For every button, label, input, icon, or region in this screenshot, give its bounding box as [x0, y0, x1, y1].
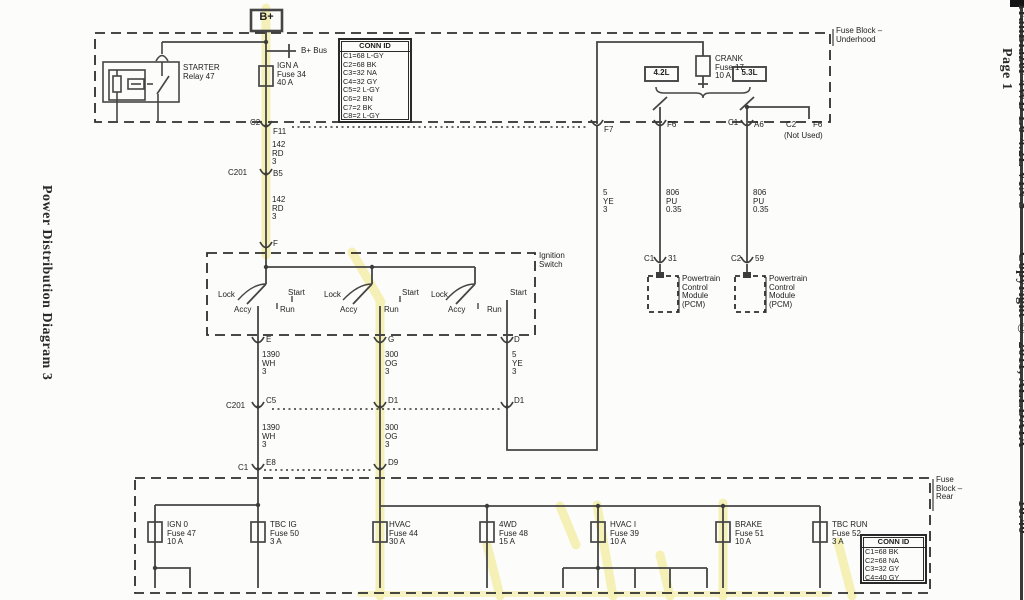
- relay-lever: [157, 76, 169, 94]
- pin-c5: [256, 405, 259, 408]
- junction-a6: [745, 105, 749, 109]
- junction-4wd: [485, 504, 489, 508]
- page-title-vertical: Power Distribution Diagram 3: [38, 185, 54, 380]
- ignition-g1-accy: Accy: [234, 306, 251, 315]
- pcm-right-pin-block: [743, 272, 751, 278]
- wire-label-806-a: 806 PU 0.35: [666, 189, 682, 215]
- version-number: 10.40: [1015, 500, 1024, 534]
- fuse-label-hvac44: HVAC Fuse 44 30 A: [389, 521, 418, 547]
- ignition-g3-start: Start: [510, 289, 527, 298]
- connector-row-dotlines: [264, 127, 588, 470]
- engine-42l-label: 4.2L: [645, 69, 678, 78]
- connector-c201b-label: C201: [226, 402, 245, 411]
- margin-info-vertical: TrailBlazer 4WD L6-4.2L VIN S Copyright …: [998, 2, 1024, 598]
- connector-c2b-label: C2: [786, 121, 796, 130]
- pin-d1a: [378, 405, 381, 408]
- fuse-crank: [696, 56, 710, 76]
- ignition-g3-accy: Accy: [448, 306, 465, 315]
- connector-c1-label: C1: [728, 119, 738, 128]
- wire-label-5ye-d: 5 YE 3: [512, 351, 523, 377]
- connector-f6b-label: F6: [813, 121, 822, 130]
- highlight-hvaci-top: [560, 506, 576, 545]
- pcm-right-border: [735, 276, 765, 312]
- wire-label-300-b: 300 OG 3: [385, 424, 398, 450]
- pcm-left-pin-block: [656, 272, 664, 278]
- underhood-block-label: Fuse Block – Underhood: [836, 27, 882, 44]
- pin-d9: [378, 467, 381, 470]
- bplus-terminal-label: B+: [251, 13, 282, 22]
- wire-label-5ye-f7: 5 YE 3: [603, 189, 614, 215]
- label-brackets: [679, 29, 933, 511]
- junction-bplus: [264, 40, 268, 44]
- wire-label-1390-a: 1390 WH 3: [262, 351, 280, 377]
- connector-d-label: D: [514, 336, 520, 345]
- connector-c201-label: C201: [228, 169, 247, 178]
- brace-engine-split: [656, 87, 750, 98]
- connector-b5-label: B5: [273, 170, 283, 179]
- conn-id-row: C8=2 L-GY: [340, 112, 410, 121]
- pcm-left-pin-label: 31: [668, 255, 677, 264]
- ignition-g2-start: Start: [402, 289, 419, 298]
- ignition-g1-lock: Lock: [218, 291, 235, 300]
- vehicle-name: TrailBlazer 4WD L6-4.2L VIN S: [1015, 2, 1024, 210]
- conn-id-row: C4=40 GY: [862, 574, 925, 583]
- ignition-g1-start: Start: [288, 289, 305, 298]
- connector-c2-label: C2: [250, 119, 260, 128]
- connector-c1rear-label: C1: [238, 464, 248, 473]
- wire-label-1390-b: 1390 WH 3: [262, 424, 280, 450]
- wire-hvaci-drops: [563, 568, 707, 588]
- ignition-block-label: Ignition Switch: [539, 252, 565, 269]
- connector-d9-label: D9: [388, 459, 398, 468]
- page-number: Page 1: [999, 48, 1014, 90]
- connector-e-label: E: [266, 336, 271, 345]
- pin-f11: [264, 124, 267, 127]
- fuse-label-ign0: IGN 0 Fuse 47 10 A: [167, 521, 196, 547]
- junction-brake: [721, 504, 725, 508]
- fuse-label-hvaci: HVAC I Fuse 39 10 A: [610, 521, 639, 547]
- wire-crank-out: [698, 76, 708, 88]
- ignition-g3-run: Run: [487, 306, 502, 315]
- highlight-tbcrun: [838, 542, 852, 596]
- ign-a-fuse-label: IGN A Fuse 34 40 A: [277, 62, 306, 88]
- highlight-comb: [660, 555, 670, 596]
- connector-a6-label: A6: [754, 121, 764, 130]
- rear-block-border: [135, 478, 930, 593]
- underhood-conn-id-table: CONN ID C1=68 L-GY C2=68 BK C3=32 NA C4=…: [338, 38, 412, 123]
- connector-e8-label: E8: [266, 459, 276, 468]
- pcm-right-label: Powertrain Control Module (PCM): [769, 275, 807, 309]
- diagram-title: Power Distribution Diagram 3: [39, 185, 54, 380]
- junction-rear-left: [256, 503, 260, 507]
- connector-f11-label: F11: [273, 128, 286, 137]
- pcm-left-conn-label: C1: [644, 255, 654, 264]
- connector-f-label: F: [273, 240, 278, 249]
- connector-d1b-label: D1: [514, 397, 524, 406]
- pcm-right-conn-label: C2: [731, 255, 741, 264]
- highlight-hvaci: [597, 505, 613, 596]
- bplus-bus-label: B+ Bus: [301, 47, 327, 56]
- relay-coil: [113, 76, 121, 92]
- junction-hvaci: [596, 504, 600, 508]
- fuse-label-tbcig: TBC IG Fuse 50 3 A: [270, 521, 299, 547]
- connector-c5-label: C5: [266, 397, 276, 406]
- connector-notused-label: (Not Used): [784, 132, 823, 141]
- diagram-canvas: Power Distribution Diagram 3 TrailBlazer…: [0, 0, 1024, 600]
- wire-label-300-a: 300 OG 3: [385, 351, 398, 377]
- connector-d1a-label: D1: [388, 397, 398, 406]
- pcm-right-pin-label: 59: [755, 255, 764, 264]
- pin-e8: [256, 467, 259, 470]
- engine-option-boxes: [251, 10, 766, 81]
- ignition-g2-lock: Lock: [324, 291, 341, 300]
- fuse-label-brake: BRAKE Fuse 51 10 A: [735, 521, 764, 547]
- relay-top-arc: [156, 56, 168, 62]
- connector-g-label: G: [388, 336, 394, 345]
- wire-label-142rd-b: 142 RD 3: [272, 196, 285, 222]
- pin-d1b: [505, 405, 508, 408]
- pcm-left-label: Powertrain Control Module (PCM): [682, 275, 720, 309]
- ignition-g2-accy: Accy: [340, 306, 357, 315]
- wire-c2f6-notused: [747, 107, 809, 119]
- block-borders: [95, 33, 930, 593]
- ignition-g3-lock: Lock: [431, 291, 448, 300]
- pcm-left-border: [648, 276, 678, 312]
- connector-f7-label: F7: [604, 126, 613, 135]
- junction-comb: [596, 566, 600, 570]
- ignition-g1-run: Run: [280, 306, 295, 315]
- connector-f6-label: F6: [667, 121, 676, 130]
- wiring-svg: [0, 0, 1024, 600]
- pin-b5: [264, 172, 267, 175]
- fuse-label-4wd: 4WD Fuse 48 15 A: [499, 521, 528, 547]
- engine-53l-label: 5.3L: [733, 69, 766, 78]
- junction-ign-1: [264, 265, 268, 269]
- wire-label-806-b: 806 PU 0.35: [753, 189, 769, 215]
- highlight-4wd: [487, 545, 500, 596]
- starter-relay-label: STARTER Relay 47: [183, 64, 220, 81]
- wire-label-142rd-a: 142 RD 3: [272, 141, 285, 167]
- wire-f7-to-crank: [597, 42, 703, 124]
- wire-ign0-branch: [155, 568, 190, 588]
- junction-ign-2: [370, 265, 374, 269]
- highlight-ign-diag: [352, 252, 381, 302]
- copyright-text: Copyright © 2011, ALLDATA: [1015, 252, 1024, 448]
- ignition-g2-run: Run: [384, 306, 399, 315]
- rear-block-label: Fuse Block – Rear: [936, 476, 962, 502]
- rear-conn-id-table: CONN ID C1=68 BK C2=68 NA C3=32 GY C4=40…: [860, 534, 927, 584]
- junction-ign0: [153, 566, 157, 570]
- fuse-symbols: [148, 56, 827, 542]
- starter-relay-symbol: [103, 42, 179, 122]
